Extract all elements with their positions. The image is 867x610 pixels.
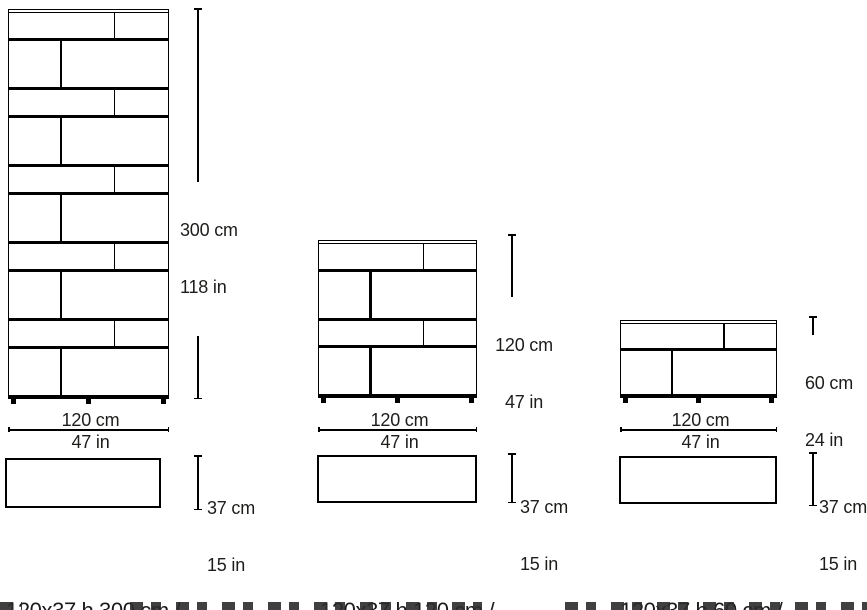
product-caption: 120x37 h 60 cm / 47x15 h 24 in (620, 543, 782, 610)
cropped-content-artifact (130, 602, 482, 610)
cropped-content-artifact (565, 602, 867, 610)
vertical-divider (723, 324, 725, 348)
shelf-row-small (621, 324, 776, 351)
depth-dimension-line (511, 453, 513, 503)
width-dimension-line (620, 429, 777, 431)
foot (696, 398, 701, 403)
vertical-divider (423, 321, 425, 346)
shelf-module (9, 321, 168, 398)
vertical-divider (369, 272, 372, 318)
width-in-label: 47 in (318, 432, 481, 453)
shelf-row-large (9, 41, 168, 87)
height-dimension-label: 120 cm 47 in (489, 297, 559, 451)
top-view-h120 (317, 455, 477, 503)
shelf-row-large (319, 348, 476, 394)
foot (86, 399, 91, 404)
top-view-h300 (5, 458, 161, 508)
foot (469, 398, 474, 403)
depth-dimension-label: 37 cm 15 in (518, 459, 570, 610)
shelf-row-large (319, 272, 476, 318)
width-in-label: 47 in (8, 432, 173, 453)
shelf-module (9, 167, 168, 244)
vertical-divider (60, 118, 63, 164)
depth-dimension-label: 37 cm 15 in (817, 459, 867, 610)
vertical-divider (423, 244, 425, 269)
width-dimension-line (318, 429, 477, 431)
vertical-divider (114, 167, 116, 192)
height-cm: 60 cm (805, 374, 853, 393)
foot (395, 398, 400, 403)
width-in-label: 47 in (620, 432, 781, 453)
foot (11, 399, 16, 404)
shelf-row-small (319, 244, 476, 272)
vertical-divider (60, 272, 63, 318)
product-caption: 120x37 h 300 cm / 47x15 h 118 in (6, 543, 180, 610)
depth-cm: 37 cm (819, 498, 867, 517)
width-cm-label: 120 cm (318, 410, 481, 431)
shelf-row-small (9, 90, 168, 118)
width-cm-label: 120 cm (620, 410, 781, 431)
vertical-divider (114, 90, 116, 115)
shelf-row-small (9, 244, 168, 272)
shelf-module (621, 324, 776, 397)
height-cm: 120 cm (491, 336, 557, 355)
foot (623, 398, 628, 403)
height-in: 47 in (491, 393, 557, 412)
width-cm-label: 120 cm (8, 410, 173, 431)
shelf-row-small (319, 321, 476, 349)
shelf-module (9, 244, 168, 321)
cropped-content-artifact (0, 602, 22, 610)
vertical-divider (60, 349, 63, 395)
depth-dimension-line (197, 455, 199, 510)
product-caption: 120x37 h 120 cm / 47x15 h 47 in (320, 543, 494, 610)
shelf-row-small (9, 167, 168, 195)
foot (769, 398, 774, 403)
height-in: 24 in (805, 431, 853, 450)
foot (161, 399, 166, 404)
front-view-h120 (318, 240, 477, 398)
vertical-divider (114, 13, 116, 38)
depth-in: 15 in (207, 556, 255, 575)
height-in: 118 in (180, 278, 238, 297)
dimension-spec-sheet: 300 cm 118 in 120 cm 47 in 37 cm 15 in 1… (0, 0, 867, 610)
shelf-row-large (9, 195, 168, 241)
vertical-divider (60, 41, 63, 87)
front-view-h300 (8, 9, 169, 399)
depth-dimension-line (812, 452, 814, 506)
vertical-divider (60, 195, 63, 241)
vertical-divider (114, 321, 116, 346)
depth-dimension-label: 37 cm 15 in (205, 460, 257, 610)
width-dimension-line (8, 429, 169, 431)
depth-in: 15 in (819, 555, 867, 574)
depth-in: 15 in (520, 555, 568, 574)
shelf-row-large (621, 351, 776, 394)
depth-cm: 37 cm (207, 499, 255, 518)
shelf-module (9, 13, 168, 90)
shelf-row-small (9, 321, 168, 349)
shelf-row-large (9, 118, 168, 164)
height-dimension-label: 300 cm 118 in (178, 182, 240, 336)
foot (321, 398, 326, 403)
depth-cm: 37 cm (520, 498, 568, 517)
height-cm: 300 cm (180, 221, 238, 240)
shelf-module (9, 90, 168, 167)
shelf-module (319, 244, 476, 321)
shelf-row-large (9, 349, 168, 395)
shelf-row-large (9, 272, 168, 318)
shelf-module (319, 321, 476, 398)
top-view-h60 (619, 456, 777, 504)
front-view-h60 (620, 320, 777, 398)
vertical-divider (114, 244, 116, 269)
vertical-divider (369, 348, 372, 394)
shelf-row-small (9, 13, 168, 41)
vertical-divider (671, 351, 674, 394)
